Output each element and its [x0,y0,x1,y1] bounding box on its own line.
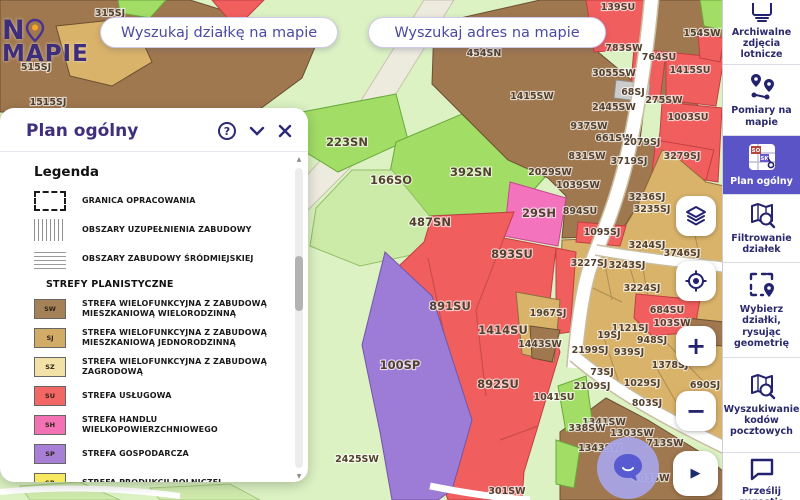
layers-icon [684,204,708,228]
sidebar-item-wybierz-dzialki[interactable]: Wybierz działki, rysując geometrię [723,263,800,358]
map-parcel-label: 3235SJ [634,204,671,215]
map-parcel-label: 2109SJ [574,381,611,392]
scroll-down-icon[interactable]: ▼ [295,473,303,480]
map-parcel-label: 73SJ [590,367,614,378]
locate-icon [684,269,708,293]
sidebar-item-filtrowanie[interactable]: Filtrowanie działek [723,195,800,263]
scroll-up-icon[interactable]: ▲ [295,156,303,163]
map-parcel-label: 893SU [491,247,533,261]
layers-button[interactable] [676,196,716,236]
map-parcel-label: 783SW [605,43,643,54]
sidebar-item-kody-pocztowe[interactable]: Wyszukiwanie kodów pocztowych [723,358,800,453]
legend-item-infill: OBSZARY UZUPEŁNIENIA ZABUDOWY [34,219,282,241]
map-parcel-label: 3279SJ [664,151,701,162]
map-parcel-label: 1414SU [478,323,528,337]
app-root: 315SJ515SJ1515SJ454SN139SU154SW783SW764S… [0,0,800,500]
legend-zone-row: SP STREFA GOSPODARCZA [34,443,282,465]
map-parcel-label: 939SJ [614,347,644,358]
map-parcel-label: 100SP [380,358,421,372]
zone-swatch: SR [34,473,66,482]
legend-body: Legenda GRANICA OPRACOWANIA OBSZARY UZUP… [0,152,308,482]
map-parcel-label: 3055SW [592,68,636,79]
map-parcel-label: 831SW [568,151,606,162]
map-parcel-label: 1039SW [556,180,600,191]
map-parcel-label: 454SN [467,48,502,59]
map-parcel-label: 1967SJ [530,308,567,319]
map-parcel-label: 338SW [568,423,606,434]
zone-swatch: SU [34,386,66,406]
map-parcel-label: 891SU [429,299,471,313]
map-parcel-label: 1415SU [670,65,711,76]
legend-zone-row: SH STREFA HANDLU WIELKOPOWIERZCHNIOWEGO [34,414,282,436]
zone-swatch: SP [34,444,66,464]
map-parcel-label: 275SW [645,95,683,106]
map-parcel-label: 3746SJ [664,248,701,259]
map-parcel-label: 937SW [570,121,608,132]
zone-swatch: SJ [34,328,66,348]
sidebar-item-plan-ogolny[interactable]: SO SK Plan ogólny [723,136,800,195]
play-button[interactable]: ▶ [673,451,718,496]
map-parcel-label: 2029SW [528,167,572,178]
search-parcel-button[interactable]: Wyszukaj działkę na mapie [100,17,338,48]
sidebar-item-archiwalne-zdjecia[interactable]: Archiwalne zdjęcia lotnicze [723,0,800,65]
legend-heading: Legenda [34,164,282,180]
map-parcel-label: 1443SW [518,339,562,350]
map-parcel-label: 1515SJ [30,97,67,108]
map-parcel-label: 3227SJ [571,258,608,269]
map-parcel-label: 690SJ [690,380,720,391]
vertical-hatch-swatch [34,219,66,241]
zoom-out-button[interactable]: − [676,391,716,431]
scrollbar-thumb[interactable] [295,256,303,311]
logo-text-top: N [2,18,25,44]
map-parcel-label: 19SJ [597,330,621,341]
map-parcel-label: 1029SJ [624,378,661,389]
map-parcel-label: 2445SW [592,102,636,113]
logo-text-bottom: MAPIE [2,44,89,66]
map-parcel-label: 803SJ [632,398,662,409]
search-parcel-label: Wyszukaj działkę na mapie [121,25,317,41]
map-parcel-label: 301SW [488,486,526,497]
panel-header: Plan ogólny ? [0,108,308,152]
map-parcel-label: 3224SJ [624,283,661,294]
horizontal-hatch-swatch [34,249,66,269]
map-parcel-label: 2425SW [335,454,379,465]
map-parcel-label: 1041SU [534,392,575,403]
legend-item-boundary: GRANICA OPRACOWANIA [34,190,282,212]
route-pins-icon [747,71,777,101]
plan-ogolny-panel: Plan ogólny ? Legenda GRANICA OPRACOWANI… [0,108,308,482]
zone-swatch: SZ [34,357,66,377]
photo-stack-icon [749,3,775,23]
map-parcel-label: 764SU [642,52,676,63]
legend-zone-row: SZ STREFA WIELOFUNKCYJNA Z ZABUDOWĄ ZAGR… [34,356,282,378]
map-parcel-label: 139SU [601,2,635,13]
panel-title: Plan ogólny [26,121,205,141]
help-icon[interactable]: ? [218,122,236,140]
map-parcel-label: 948SJ [637,335,667,346]
legend-scrollbar[interactable]: ▲ ▼ [295,168,303,468]
legend-zone-row: SW STREFA WIELOFUNKCYJNA Z ZABUDOWĄ MIES… [34,298,282,320]
map-parcel-label: 487SN [409,215,451,229]
legend-zone-row: SJ STREFA WIELOFUNKCYJNA Z ZABUDOWĄ MIES… [34,327,282,349]
map-parcel-label: 3243SJ [609,260,646,271]
legend-item-downtown: OBSZARY ZABUDOWY ŚRÓDMIEJSKIEJ [34,248,282,270]
map-parcel-label: 713SW [646,438,684,449]
chat-bubble-icon [748,456,776,482]
map-parcel-label: 3719SJ [611,156,648,167]
search-address-label: Wyszukaj adres na mapie [394,25,579,41]
select-geometry-icon [747,270,777,300]
boundary-swatch [34,191,66,211]
plan-map-icon: SO SK [747,142,777,172]
sidebar-item-pomiary[interactable]: Pomiary na mapie [723,65,800,136]
chat-smile-icon [611,452,645,484]
brand-logo[interactable]: N MAPIE [2,18,89,66]
search-address-button[interactable]: Wyszukaj adres na mapie [368,17,606,48]
chat-widget-button[interactable] [597,437,659,499]
map-parcel-label: 1095SJ [584,227,621,238]
map-parcel-label: 29SH [522,206,556,220]
zone-swatch: SH [34,415,66,435]
map-parcel-label: 894SU [563,206,597,217]
legend-zone-row: SU STREFA USŁUGOWA [34,385,282,407]
zones-section-heading: STREFY PLANISTYCZNE [46,279,282,290]
map-parcel-label: 892SU [477,377,519,391]
map-parcel-label: 684SU [650,305,684,316]
locate-button[interactable] [676,261,716,301]
map-parcel-label: 2199SJ [572,345,609,356]
svg-text:SO: SO [751,148,760,154]
map-search-icon [748,372,776,400]
map-parcel-label: 392SN [450,165,492,179]
map-parcel-label: 1415SW [510,91,554,102]
zone-swatch: SW [34,299,66,319]
collapse-chevron-icon[interactable] [249,126,265,136]
map-parcel-label: 68SJ [621,87,645,98]
minus-icon: − [686,399,706,423]
zoom-in-button[interactable]: + [676,326,716,366]
map-search-icon [748,201,776,229]
map-parcel-label: 154SW [683,28,721,39]
legend-zone-row: SR STREFA PRODUKCJI ROLNICZEJ [34,472,282,482]
tools-sidebar: Archiwalne zdjęcia lotnicze Pomiary na m… [722,0,800,500]
map-parcel-label: 2079SJ [624,137,661,148]
close-icon[interactable] [278,124,292,138]
sidebar-item-sugestia[interactable]: Prześlij sugestię [723,453,800,500]
map-parcel-label: 223SN [326,135,368,149]
play-icon: ▶ [691,466,701,481]
map-parcel-label: 3236SJ [629,192,666,203]
map-parcel-label: 166SO [370,173,412,187]
map-parcel-label: 1003SU [668,112,709,123]
map-parcel-label: 3244SJ [629,240,666,251]
plus-icon: + [686,334,706,358]
